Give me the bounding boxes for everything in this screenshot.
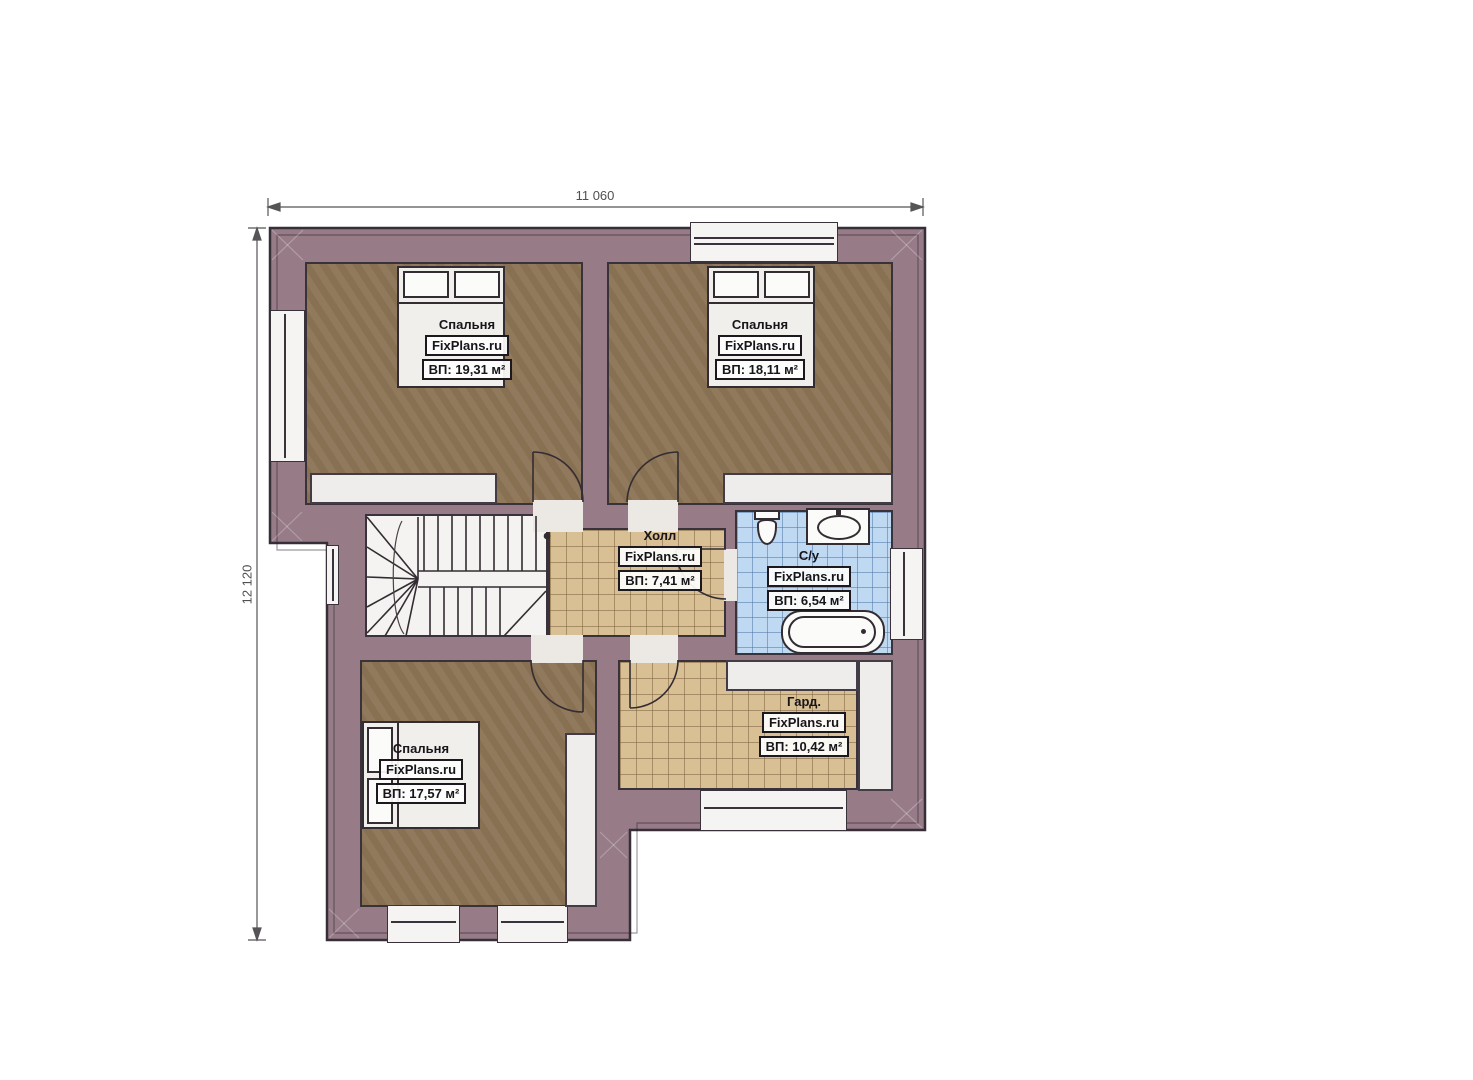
room-area: ВП: 19,31 м²: [422, 359, 513, 380]
brand-label: FixPlans.ru: [762, 712, 846, 733]
pillow: [454, 271, 500, 298]
pillow: [713, 271, 759, 298]
bathtub-icon: [781, 610, 885, 654]
brand-label: FixPlans.ru: [379, 759, 463, 780]
room-area: ВП: 10,42 м²: [759, 736, 850, 757]
dimension-width-label: 11 060: [560, 188, 630, 203]
window-pane: [694, 237, 834, 239]
window: [326, 545, 339, 605]
window: [270, 310, 305, 462]
room-name: Спальня: [393, 741, 449, 756]
sink-basin: [817, 515, 861, 540]
sink-icon: [806, 508, 870, 545]
window-pane: [903, 552, 905, 636]
window-pane: [704, 807, 843, 809]
room-area: ВП: 17,57 м²: [376, 783, 467, 804]
window-pane: [694, 243, 834, 245]
wardrobe-door-opening: [630, 635, 678, 663]
closet: [726, 660, 858, 691]
room-label-bedroom-1: Спальня FixPlans.ru ВП: 19,31 м²: [407, 317, 527, 380]
room-name: Холл: [644, 528, 677, 543]
floor-plan-canvas: 11 060 12 120 Спальня FixPlans.ru ВП: 19…: [0, 0, 1473, 1080]
room-name: Гард.: [787, 694, 821, 709]
bedroom-3-door-opening: [531, 635, 583, 663]
window: [497, 905, 568, 943]
window: [690, 222, 838, 262]
room-area: ВП: 18,11 м²: [715, 359, 805, 380]
pillow: [403, 271, 449, 298]
brand-label: FixPlans.ru: [718, 335, 802, 356]
sink-tap: [836, 508, 841, 515]
room-label-bathroom: С/у FixPlans.ru ВП: 6,54 м²: [749, 548, 869, 611]
room-label-wardrobe: Гард. FixPlans.ru ВП: 10,42 м²: [744, 694, 864, 757]
bedroom-1-door-opening: [533, 500, 583, 532]
closet: [723, 473, 893, 504]
staircase-floor: [365, 514, 548, 637]
brand-label: FixPlans.ru: [425, 335, 509, 356]
blanket-edge: [708, 302, 814, 304]
window: [387, 905, 460, 943]
room-label-bedroom-3: Спальня FixPlans.ru ВП: 17,57 м²: [361, 741, 481, 804]
window-pane: [284, 314, 286, 458]
room-name: Спальня: [732, 317, 788, 332]
bathroom-door-opening: [724, 549, 737, 601]
window: [700, 790, 847, 831]
room-label-bedroom-2: Спальня FixPlans.ru ВП: 18,11 м²: [700, 317, 820, 380]
room-area: ВП: 7,41 м²: [618, 570, 702, 591]
room-area: ВП: 6,54 м²: [767, 590, 851, 611]
toilet-bowl: [757, 519, 777, 545]
room-name: С/у: [799, 548, 819, 563]
pillow: [764, 271, 810, 298]
toilet-icon: [754, 510, 780, 546]
window: [890, 548, 923, 640]
closet: [310, 473, 497, 504]
room-label-hall: Холл FixPlans.ru ВП: 7,41 м²: [600, 528, 720, 591]
brand-label: FixPlans.ru: [618, 546, 702, 567]
blanket-edge: [398, 302, 504, 304]
dimension-height-label: 12 120: [240, 550, 255, 620]
bathtub-drain: [861, 629, 866, 634]
window-pane: [501, 921, 564, 923]
closet: [565, 733, 597, 907]
brand-label: FixPlans.ru: [767, 566, 851, 587]
room-name: Спальня: [439, 317, 495, 332]
window-pane: [332, 549, 334, 601]
window-pane: [391, 921, 456, 923]
